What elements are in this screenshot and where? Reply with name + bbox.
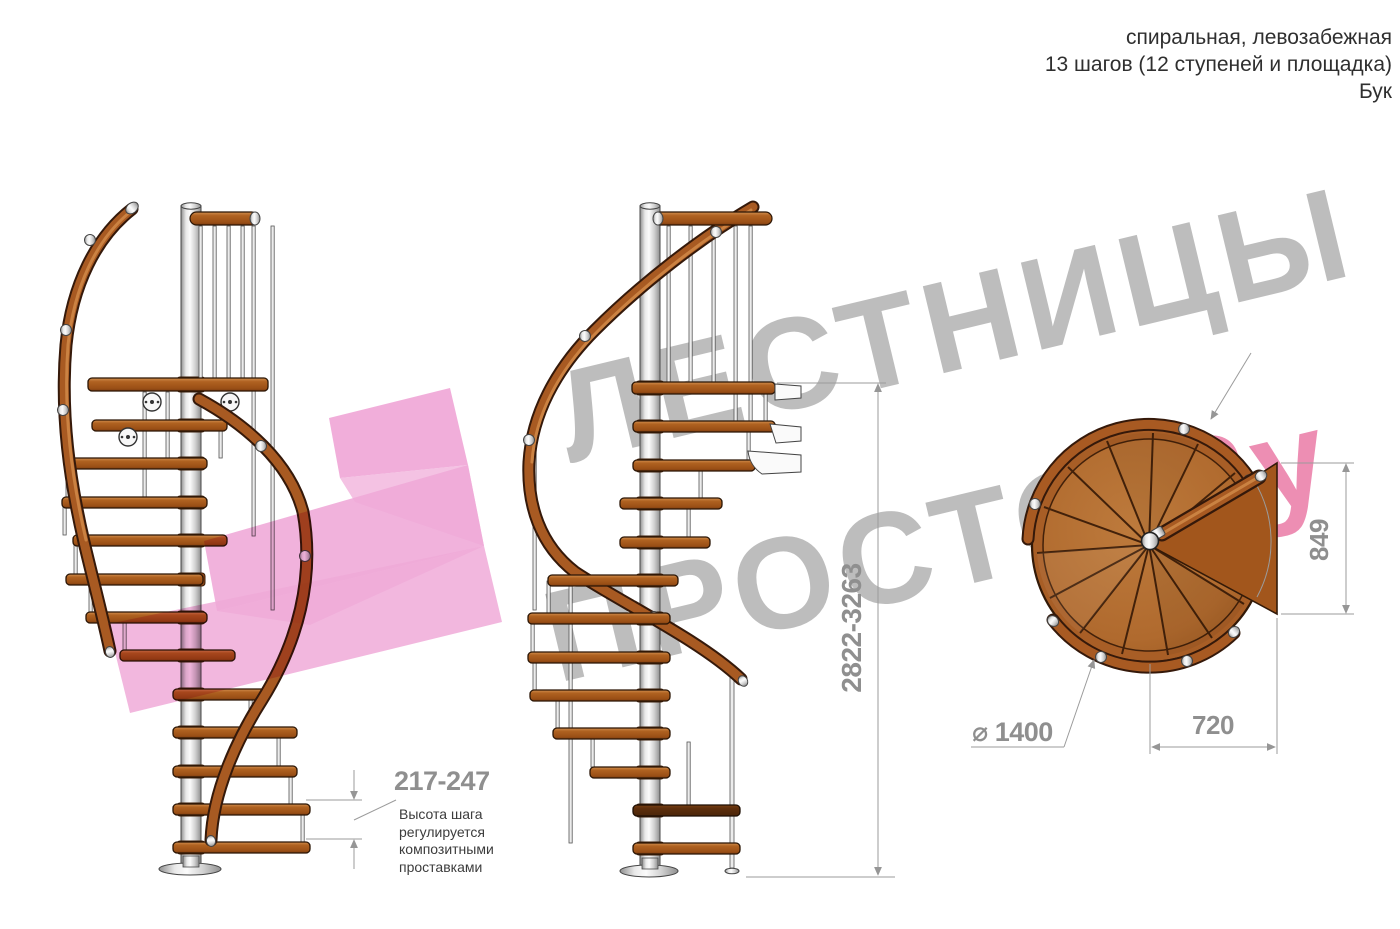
pole-top-cap [640,203,660,209]
step-height-value: 217-247 [394,766,490,796]
diameter-value: ⌀ 1400 [972,717,1053,747]
drawing-page: спиральная, левозабежная 13 шагов (12 ст… [0,0,1400,929]
header-steps: 13 шагов (12 ступеней и площадка) [1045,51,1392,78]
dimension-diameter-1400: ⌀ 1400 [971,660,1094,747]
handrail-connector [580,331,591,342]
staircase-drawing: 217-247 2822-3263 849 720 ⌀ 1400 [0,0,1400,929]
plan-center-pole [1142,533,1159,550]
top-railing [190,212,260,225]
header-type: спиральная, левозабежная [1045,24,1392,51]
header-material: Бук [1045,78,1392,105]
handrail-connector [711,227,722,238]
landing-platform [88,378,268,391]
landing-platform [632,382,775,394]
plan-leader-line [1211,353,1251,419]
handrail-connector [256,441,267,452]
railing-end-cap [653,212,663,225]
handrail-connector [61,325,72,336]
rod-foot [725,868,739,874]
pole-top-cap [181,203,201,209]
drawing-note: Высота шага регулируется композитными пр… [399,806,494,876]
page-header: спиральная, левозабежная 13 шагов (12 ст… [1045,24,1392,105]
handrail-connector [524,435,535,446]
plan-height-value: 849 [1304,519,1334,561]
dimension-plan-height-849: 849 [1281,463,1354,614]
total-height-value: 2822-3263 [836,563,867,692]
elevation-view-middle [524,203,802,877]
plan-offset-value: 720 [1192,710,1234,740]
top-railing [653,212,772,225]
handrail-connector [58,405,69,416]
plan-view [1028,353,1277,667]
railing-end-cap [250,212,260,225]
handrail-connector [85,235,96,246]
